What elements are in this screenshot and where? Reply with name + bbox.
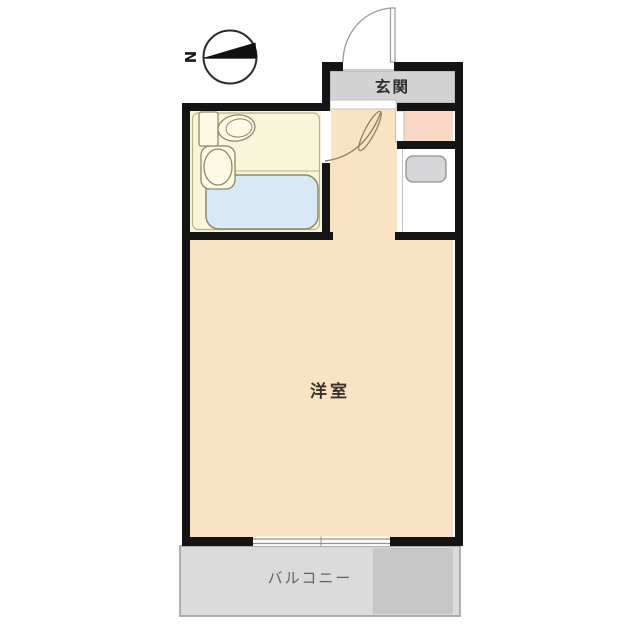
entrance-door-leaf — [391, 8, 396, 62]
washing-machine-icon — [406, 156, 446, 182]
wall-laundry-bottom — [395, 232, 463, 240]
floor-plan: N 玄関 洋室 バルコニー — [0, 0, 640, 640]
storage-nook-floor — [404, 111, 453, 142]
wall-left-outer — [182, 103, 190, 546]
wall-bathroom-bottom — [182, 232, 333, 240]
balcony-window — [253, 537, 390, 547]
wall-entrance-top-right — [394, 62, 463, 71]
balcony-label: バルコニー — [200, 567, 420, 588]
wall-bottom-right — [390, 537, 463, 546]
wall-nook-bottom — [397, 141, 463, 149]
nook-partition — [396, 111, 405, 142]
bathroom-doorway — [321, 111, 331, 163]
wall-bathroom-top — [182, 103, 330, 111]
toilet-tank — [199, 112, 218, 146]
wall-right-outer — [455, 62, 463, 546]
entrance-room-label: 玄関 — [330, 71, 455, 103]
western-room-label: 洋室 — [250, 377, 410, 402]
compass-north-label: N — [181, 47, 201, 67]
hallway-floor — [330, 107, 397, 247]
wall-nook-top — [397, 103, 463, 111]
entrance-door-swing-arc — [343, 8, 393, 62]
sink-basin — [204, 149, 232, 185]
floor-plan-drawing — [0, 0, 640, 640]
wall-bathroom-right — [322, 163, 330, 240]
wall-bottom-left — [182, 537, 253, 546]
compass — [203, 31, 257, 84]
